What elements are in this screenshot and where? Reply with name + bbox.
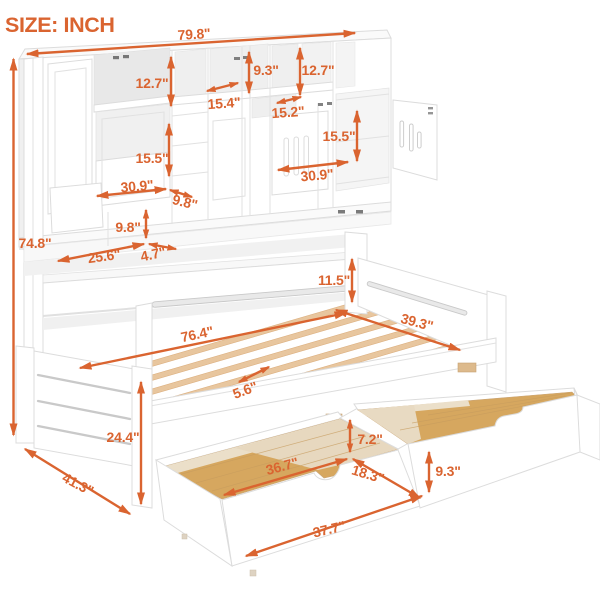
svg-text:12.7": 12.7" [302, 62, 335, 78]
svg-text:9.3": 9.3" [253, 62, 278, 78]
svg-text:79.8": 79.8" [177, 25, 211, 43]
svg-text:30.9": 30.9" [120, 177, 154, 196]
svg-text:9.3": 9.3" [435, 463, 460, 479]
svg-text:SIZE: INCH: SIZE: INCH [5, 13, 114, 37]
svg-text:24.4": 24.4" [107, 429, 140, 445]
svg-text:15.2": 15.2" [271, 103, 305, 121]
svg-text:15.4": 15.4" [207, 94, 241, 112]
svg-text:7.2": 7.2" [357, 431, 382, 447]
svg-text:9.8": 9.8" [115, 219, 140, 235]
svg-text:30.9": 30.9" [300, 166, 334, 185]
svg-text:11.5": 11.5" [318, 272, 350, 288]
svg-text:15.5": 15.5" [136, 150, 169, 166]
svg-text:15.5": 15.5" [323, 128, 356, 144]
svg-text:12.7": 12.7" [136, 75, 169, 91]
svg-text:41.3": 41.3" [60, 469, 97, 499]
svg-text:74.8": 74.8" [19, 235, 52, 251]
